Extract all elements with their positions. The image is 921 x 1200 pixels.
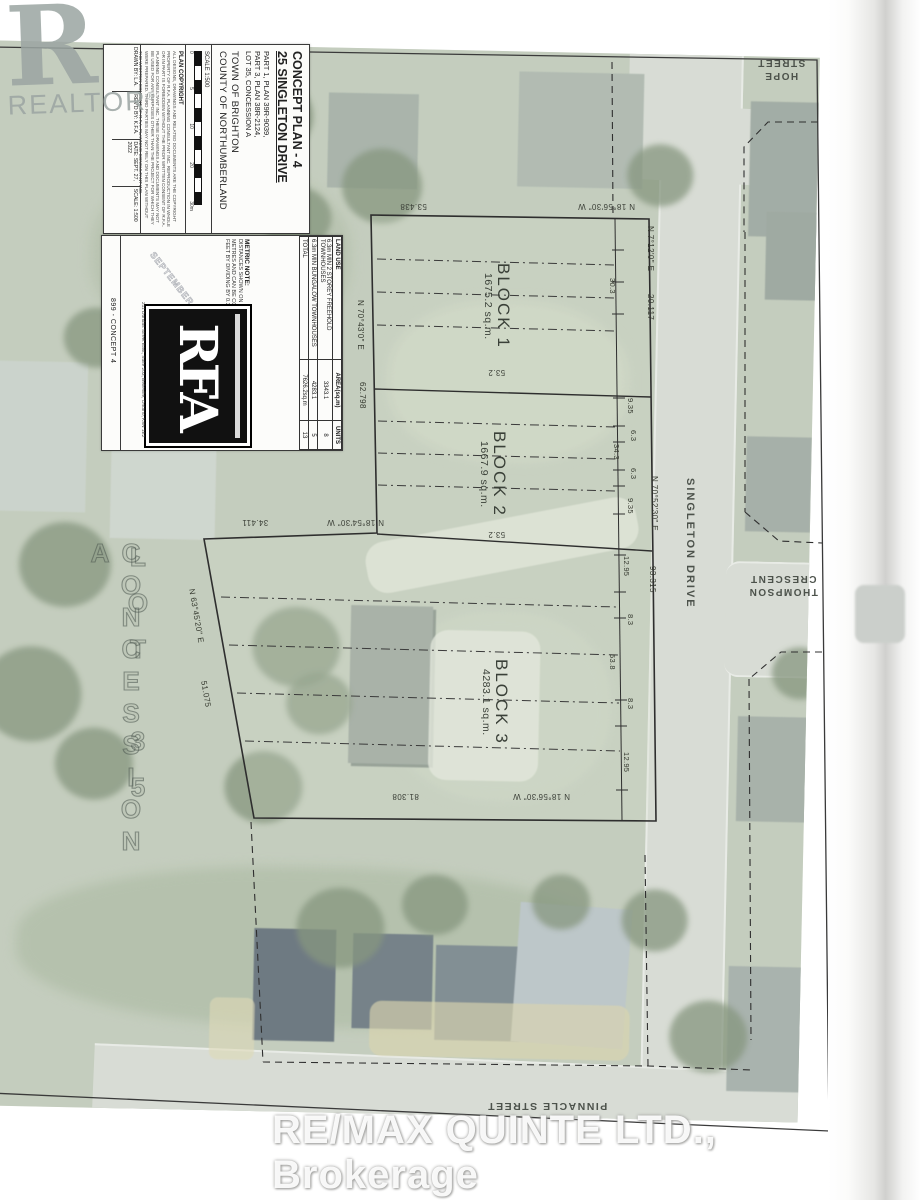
plan-part-b: PART 3, PLAN 38R-2124, [253, 51, 262, 227]
table-row: 6.3m MIN 2 STOREY FREEHOLD TOWNHOUSES 33… [318, 237, 333, 450]
table-row: TOTAL 7626.2sq.m 13 [300, 237, 309, 450]
block2-area: 1667.9 sq.m. [478, 441, 490, 508]
plan-address: 25 SINGLETON DRIVE [274, 51, 289, 227]
scale-label: SCALE 1:500 [203, 51, 209, 227]
dim-b2-0: 9.35 [626, 398, 635, 414]
bearing-north-boundary: N 18°56'30" W 53.438 [400, 202, 635, 211]
block3-name: BLOCK 3 [492, 659, 511, 745]
land-use-panel: LAND USE AREA(sq.m) UNITS 6.3m MIN 2 STO… [103, 235, 343, 449]
block1-area: 1675.2 sq.m. [482, 273, 494, 340]
brokerage-watermark: RE/MAX QUINTE LTD., Brokerage [272, 1108, 921, 1198]
scale-bar [194, 51, 202, 205]
street-label-singleton: SINGLETON DRIVE [684, 478, 696, 638]
scale-tick: 0 [188, 51, 194, 54]
block2-name: BLOCK 2 [490, 431, 509, 517]
registered-symbol: ® [146, 90, 157, 102]
dim-b2-3: 6.3 [629, 468, 638, 479]
dim-b2-1: 6.3 [629, 430, 638, 441]
bearing-south-boundary: N 18°56'30" W 81.308 [392, 792, 570, 801]
copyright-heading: PLAN COPYRIGHT [177, 51, 183, 227]
rfa-logo-text: RFA [154, 314, 242, 438]
distance-text: 53.438 [400, 202, 427, 211]
scale-tick: 20 [188, 162, 194, 168]
use-cell: 6.3m MIN BUNGALOW TOWNHOUSES [309, 237, 318, 360]
plan-part-a: PART 1, PLAN 39R-9039, [262, 51, 271, 227]
dim-b2-2: 34.3 [612, 444, 621, 460]
plan-title: CONCEPT PLAN - 4 [289, 51, 304, 227]
dim-53-2-b: 53.2 [488, 530, 505, 539]
bearing-left: N 70°43'0" E [356, 300, 365, 350]
rfa-logo: RFA [144, 304, 252, 448]
rev-cell-scale: SCALE: 1:500 [112, 186, 140, 233]
block1-name: BLOCK 1 [494, 263, 513, 349]
dim-53-2-a: 53.2 [488, 368, 505, 377]
rev-cell-date: DATE: SEPT. 27, 2022 [112, 139, 140, 186]
dim-b3-3: 8.3 [626, 698, 635, 709]
table-row: 6.3m MIN BUNGALOW TOWNHOUSES 4283.1 5 [309, 237, 318, 450]
dim-b3-4: 12.95 [622, 752, 631, 772]
dim-b2-4: 9.35 [626, 498, 635, 514]
block3-label: BLOCK 3 4283.1 sq.m. [478, 652, 509, 752]
land-use-table: LAND USE AREA(sq.m) UNITS 6.3m MIN 2 STO… [299, 236, 342, 450]
rfa-logo-band [235, 314, 240, 438]
scale-tick: 5 [188, 87, 194, 90]
area-cell: 3343.1 [318, 360, 333, 421]
dim-30-3: 30.3 [608, 278, 617, 294]
plan-town: TOWN OF BRIGHTON [228, 51, 240, 227]
use-cell: 6.3m MIN 2 STOREY FREEHOLD TOWNHOUSES [318, 237, 333, 360]
scanned-concept-plan-page: BLOCK 1 1675.2 sq.m. BLOCK 2 1667.9 sq.m… [0, 0, 921, 1200]
bearing-text: N 18°56'30" W [513, 792, 570, 801]
len-left: 62.798 [358, 382, 367, 409]
distance-text: 81.308 [392, 792, 419, 801]
dim-b3-2: 53.8 [608, 654, 617, 670]
realtor-text: REALTOR [7, 86, 147, 121]
len-right: 20.117 [646, 294, 655, 320]
use-cell: TOTAL [300, 237, 309, 360]
area-cell: 4283.1 [309, 360, 318, 421]
units-cell: 8 [318, 421, 333, 450]
bearing-text: N 18°54'30" W [327, 518, 384, 527]
street-label-hope: HOPE STREET [740, 56, 822, 82]
street-label-thompson: THOMPSON CRESCENT [738, 572, 828, 598]
rfa-address: 211 Dundas Street East, Suite 203, Belle… [140, 302, 145, 448]
distance-text: 34.411 [242, 518, 268, 527]
scan-artifact [855, 585, 905, 643]
block1-label: BLOCK 1 1675.2 sq.m. [480, 256, 511, 356]
plan-part-c: LOT 35, CONCESSION A [244, 51, 253, 227]
bearing-right: N 7°12'0" E [646, 226, 655, 271]
units-cell: 5 [309, 421, 318, 450]
bearing-text: N 18°56'30" W [578, 202, 635, 211]
scale-tick: 10 [188, 123, 194, 129]
bearing-mid-boundary: N 18°54'30" W 34.411 [242, 518, 384, 527]
plan-county: COUNTY OF NORTHUMBERLAND [216, 51, 228, 227]
dim-b3-1: 8.3 [626, 614, 635, 625]
project-number: 899 - CONCEPT 4 [109, 236, 120, 450]
realtor-wordmark: REALTOR® [7, 85, 157, 121]
len-east: 93.315 [648, 566, 657, 593]
area-header: AREA(sq.m) [333, 360, 342, 421]
block2-label: BLOCK 2 1667.9 sq.m. [476, 424, 507, 524]
units-cell: 13 [300, 421, 309, 450]
land-use-header: LAND USE [333, 237, 342, 360]
dim-b3-0: 12.95 [622, 556, 631, 576]
lot-watermark-line2: CONCESSION A [84, 538, 146, 838]
units-header: UNITS [333, 421, 342, 450]
area-cell: 7626.2sq.m [300, 360, 309, 421]
realtor-watermark: R REALTOR® [4, 0, 158, 122]
bearing-east: N 70°52'30" E [650, 476, 659, 531]
block3-area: 4283.1 sq.m. [480, 669, 492, 736]
scale-tick: 30m [188, 201, 194, 211]
